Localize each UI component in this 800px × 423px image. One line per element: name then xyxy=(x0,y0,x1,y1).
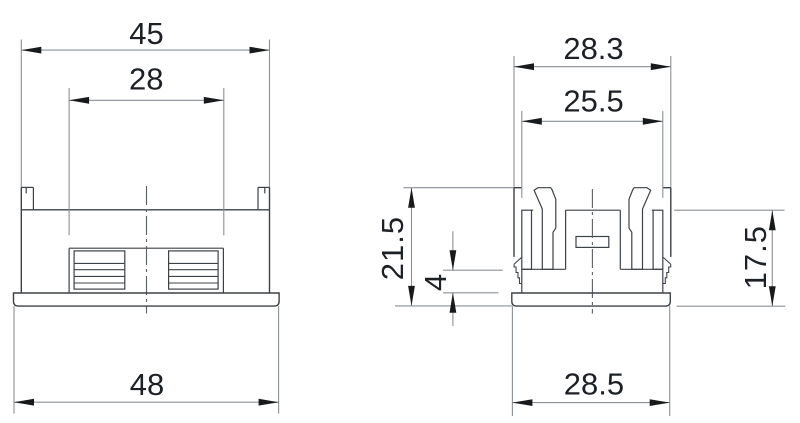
svg-text:21.5: 21.5 xyxy=(375,216,410,280)
svg-text:17.5: 17.5 xyxy=(738,225,773,289)
svg-text:28.5: 28.5 xyxy=(564,367,624,402)
svg-text:4: 4 xyxy=(418,273,453,291)
svg-text:48: 48 xyxy=(130,367,164,402)
svg-text:25.5: 25.5 xyxy=(563,84,623,119)
svg-text:28.3: 28.3 xyxy=(563,31,623,66)
svg-text:28: 28 xyxy=(129,62,163,97)
svg-text:45: 45 xyxy=(129,16,163,51)
